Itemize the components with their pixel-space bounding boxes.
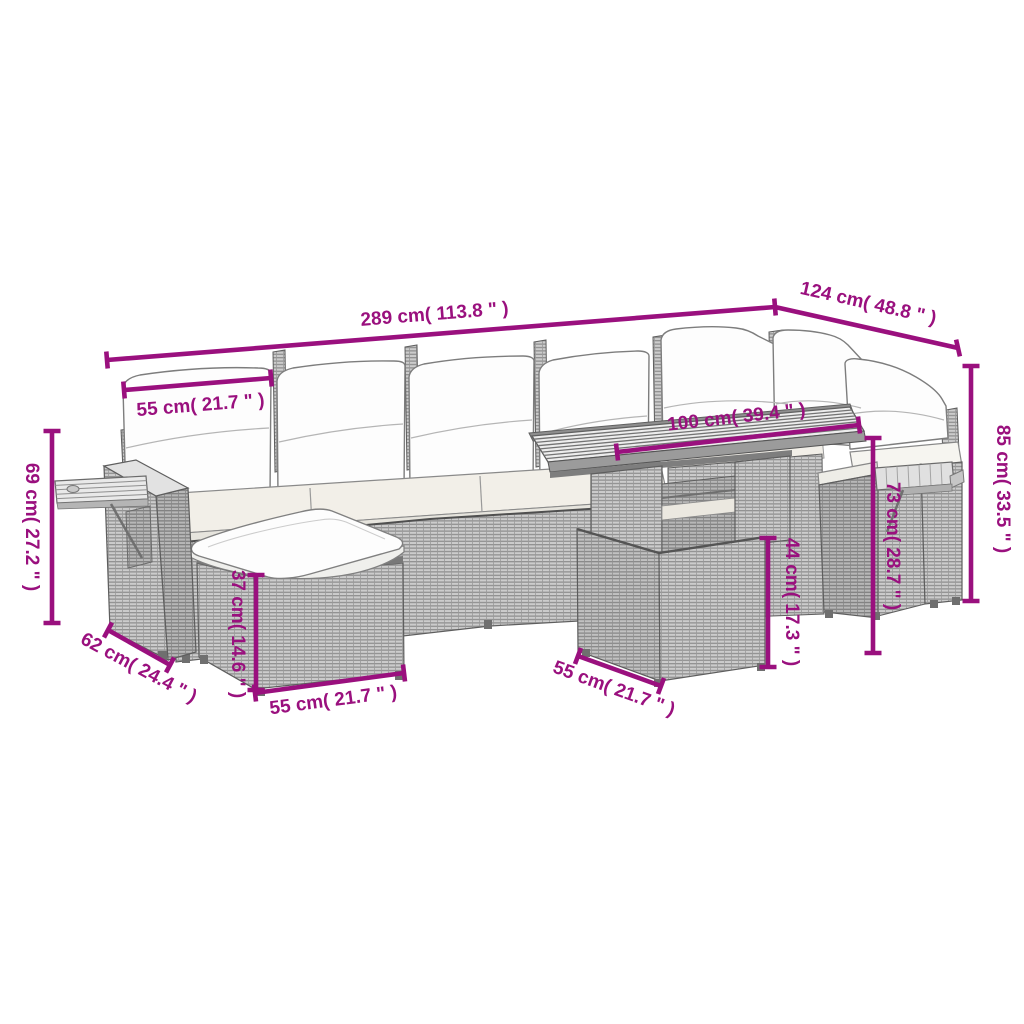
svg-text:85 cm( 33.5 " ): 85 cm( 33.5 " ) xyxy=(992,425,1013,553)
svg-text:37 cm( 14.6 " ): 37 cm( 14.6 " ) xyxy=(227,570,248,698)
svg-text:44 cm( 17.3 " ): 44 cm( 17.3 " ) xyxy=(781,538,802,666)
svg-text:73 cm( 28.7 " ): 73 cm( 28.7 " ) xyxy=(882,482,903,610)
svg-text:69 cm( 27.2 " ): 69 cm( 27.2 " ) xyxy=(21,463,42,591)
